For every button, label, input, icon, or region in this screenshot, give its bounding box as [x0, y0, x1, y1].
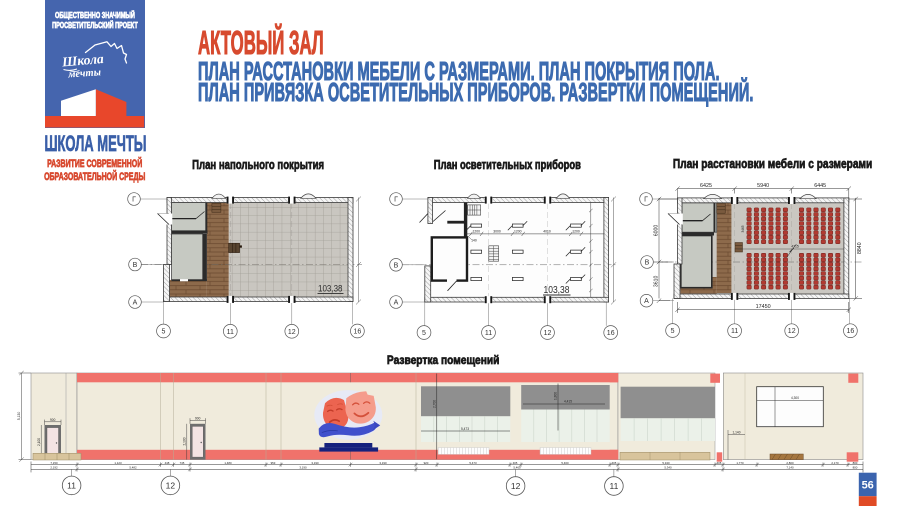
svg-text:7,140: 7,140 [786, 466, 794, 470]
svg-text:2,192: 2,192 [50, 466, 58, 470]
svg-text:405: 405 [717, 461, 722, 465]
svg-text:3610: 3610 [653, 276, 659, 288]
svg-text:2,800: 2,800 [786, 461, 794, 465]
svg-text:11: 11 [67, 481, 76, 491]
svg-text:4715: 4715 [791, 245, 799, 249]
svg-text:3,190: 3,190 [311, 461, 319, 465]
svg-text:12: 12 [166, 481, 176, 491]
svg-text:11: 11 [609, 481, 618, 491]
svg-text:103,38: 103,38 [544, 285, 570, 296]
svg-text:3000: 3000 [493, 230, 501, 234]
svg-text:3465: 3465 [741, 225, 745, 232]
svg-text:5940: 5940 [757, 183, 769, 189]
svg-text:А: А [133, 300, 138, 307]
svg-text:5,473: 5,473 [461, 427, 469, 431]
svg-text:140: 140 [471, 239, 477, 243]
svg-text:1200: 1200 [572, 230, 580, 234]
svg-text:5,130: 5,130 [17, 412, 21, 421]
svg-text:11: 11 [227, 329, 234, 336]
svg-text:В: В [645, 260, 650, 267]
svg-text:1200: 1200 [473, 230, 481, 234]
svg-text:12: 12 [288, 329, 296, 336]
svg-text:16: 16 [847, 328, 855, 335]
svg-text:800: 800 [853, 461, 858, 465]
svg-text:5,473: 5,473 [469, 461, 477, 465]
svg-text:Г: Г [644, 197, 648, 204]
svg-text:12: 12 [788, 328, 796, 335]
svg-text:5,340: 5,340 [662, 461, 670, 465]
svg-text:Г: Г [394, 197, 398, 204]
svg-text:103,38: 103,38 [318, 283, 343, 293]
svg-text:1,123: 1,123 [114, 461, 122, 465]
svg-text:5,460: 5,460 [513, 466, 521, 470]
svg-text:900: 900 [50, 418, 56, 422]
svg-text:56: 56 [862, 480, 874, 492]
svg-text:12: 12 [511, 481, 521, 491]
svg-text:6445: 6445 [814, 183, 826, 189]
svg-text:405: 405 [513, 461, 518, 465]
svg-text:800: 800 [853, 466, 858, 470]
svg-text:А: А [644, 298, 649, 305]
svg-text:11: 11 [485, 330, 492, 337]
svg-text:2,100: 2,100 [37, 438, 41, 446]
svg-text:16: 16 [354, 329, 362, 336]
svg-text:12: 12 [544, 330, 552, 337]
svg-text:А: А [394, 300, 399, 307]
svg-text:5: 5 [162, 329, 166, 336]
svg-text:5,482: 5,482 [129, 466, 137, 470]
svg-text:5,460: 5,460 [561, 461, 569, 465]
svg-text:1,480: 1,480 [224, 461, 232, 465]
svg-text:3,190: 3,190 [299, 466, 307, 470]
svg-text:405: 405 [612, 461, 617, 465]
svg-text:900: 900 [195, 416, 201, 420]
svg-text:1,770: 1,770 [736, 461, 744, 465]
svg-text:4,300: 4,300 [791, 396, 799, 400]
svg-text:6000: 6000 [653, 225, 659, 237]
svg-text:920: 920 [424, 461, 429, 465]
svg-text:2,100: 2,100 [183, 437, 187, 445]
svg-text:5: 5 [422, 330, 426, 337]
svg-text:В: В [394, 262, 399, 269]
svg-text:7,150: 7,150 [50, 461, 58, 465]
svg-text:2,700: 2,700 [433, 400, 437, 408]
svg-text:8840: 8840 [857, 242, 863, 254]
svg-text:745: 745 [180, 461, 185, 465]
svg-text:953: 953 [271, 461, 276, 465]
svg-text:16: 16 [607, 330, 615, 337]
svg-text:6425: 6425 [700, 183, 712, 189]
svg-text:2,170: 2,170 [831, 461, 839, 465]
svg-text:17450: 17450 [756, 304, 771, 310]
svg-text:В: В [133, 262, 138, 269]
svg-text:1200: 1200 [514, 230, 522, 234]
svg-text:4,415: 4,415 [564, 400, 572, 404]
svg-text:11: 11 [731, 328, 738, 335]
svg-text:1,800: 1,800 [554, 392, 558, 400]
svg-text:3,190: 3,190 [379, 461, 387, 465]
svg-text:4010: 4010 [543, 230, 551, 234]
svg-text:1,140: 1,140 [733, 430, 741, 434]
svg-text:5,340: 5,340 [664, 466, 672, 470]
svg-text:Г: Г [132, 197, 136, 204]
svg-text:448: 448 [165, 461, 170, 465]
svg-text:5: 5 [671, 328, 675, 335]
